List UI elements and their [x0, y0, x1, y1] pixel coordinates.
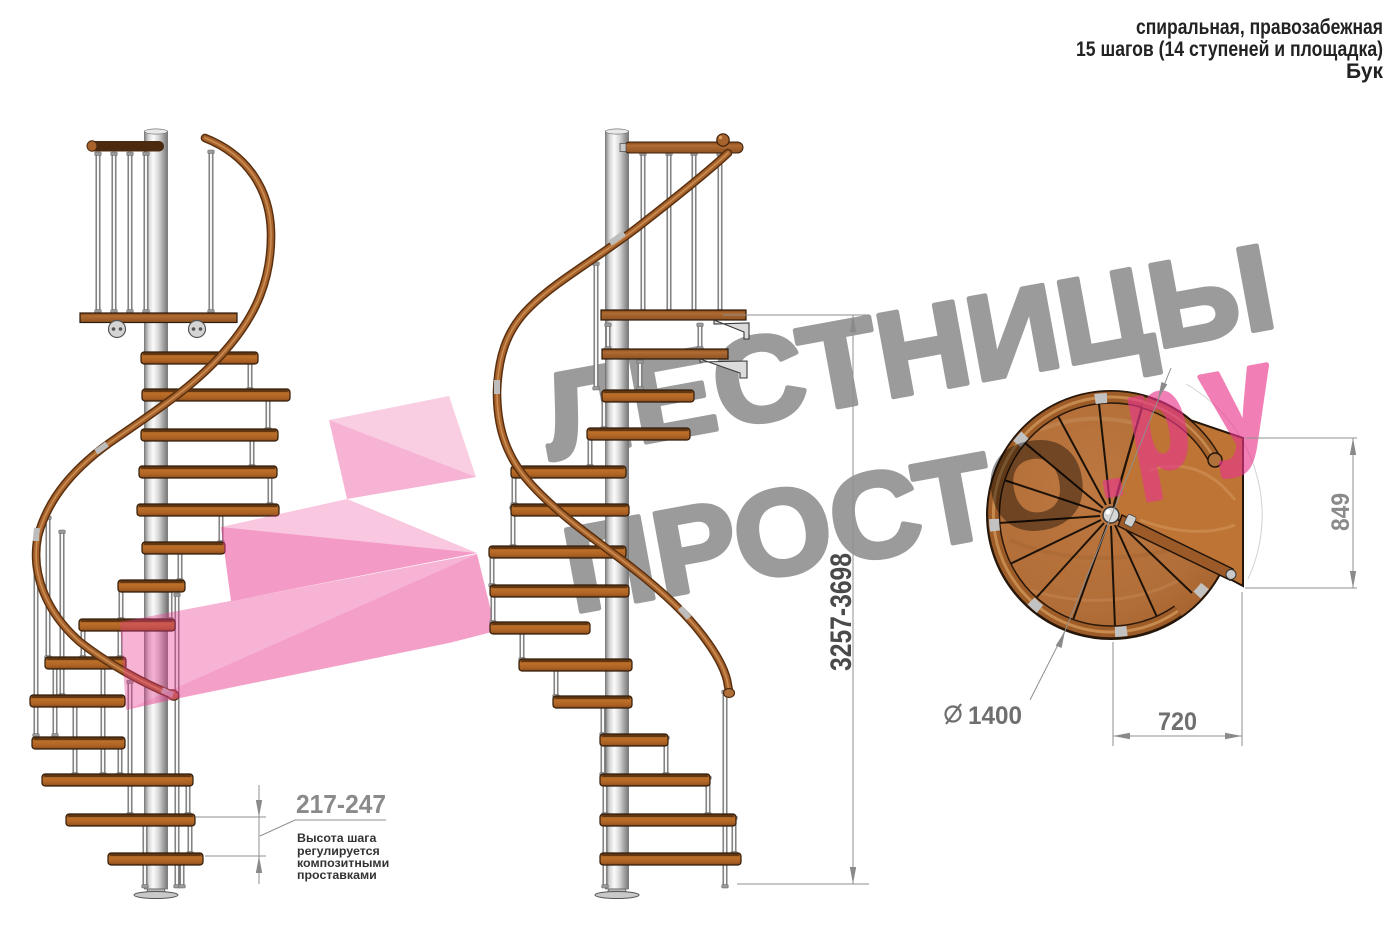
svg-text:спиральная, правозабежная: спиральная, правозабежная	[1136, 15, 1383, 39]
svg-text:217-247: 217-247	[296, 789, 386, 819]
svg-text:Бук: Бук	[1346, 59, 1383, 83]
svg-text:3257-3698: 3257-3698	[825, 553, 858, 671]
svg-text:849: 849	[1327, 493, 1355, 531]
svg-text:15 шагов (14 ступеней и площад: 15 шагов (14 ступеней и площадка)	[1076, 37, 1383, 61]
svg-text:Высота шагарегулируетсякомпози: Высота шагарегулируетсякомпозитнымипрост…	[297, 831, 389, 882]
svg-text:720: 720	[1158, 708, 1197, 736]
svg-text:1400: 1400	[968, 702, 1022, 730]
